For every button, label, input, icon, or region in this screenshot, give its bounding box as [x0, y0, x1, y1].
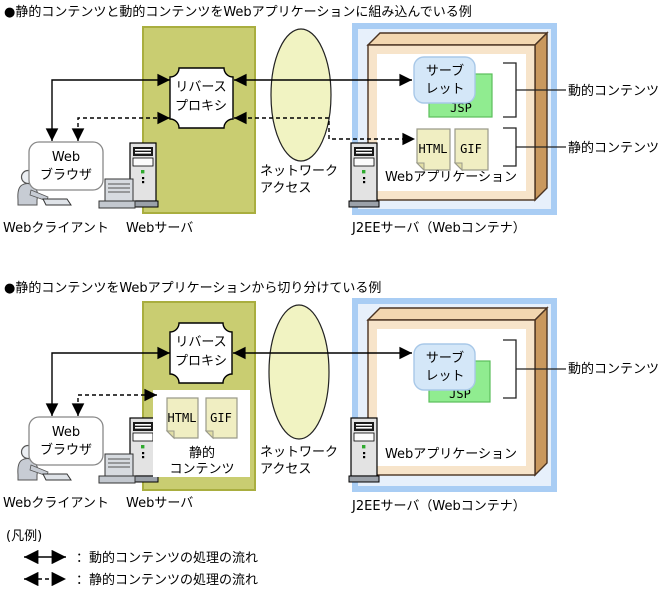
section1-title: ●静的コンテンツと動的コンテンツをWebアプリケーションに組み込んでいる例 — [4, 4, 472, 20]
reverse-proxy-line2-2: プロキシ — [175, 354, 227, 369]
gif-doc-label-1: GIF — [460, 142, 482, 156]
html-doc-icon-2: HTML — [167, 398, 198, 438]
servlet-label-line1-1: サーブ — [426, 63, 464, 79]
section2-title: ●静的コンテンツをWebアプリケーションから切り分けている例 — [4, 280, 381, 296]
diagram-canvas: ●静的コンテンツと動的コンテンツをWebアプリケーションに組み込んでいる例 JS… — [0, 0, 672, 591]
network-label-line1-2: ネットワーク — [260, 445, 338, 460]
gif-doc-icon-1: GIF — [455, 129, 488, 170]
static-store-caption-line1: 静的 — [189, 445, 215, 461]
legend-dynamic-label: ：動的コンテンツの処理の流れ — [76, 550, 258, 566]
architecture-diagram: ●静的コンテンツと動的コンテンツをWebアプリケーションに組み込んでいる例 JS… — [0, 0, 672, 591]
dynamic-content-label-1: 動的コンテンツ — [568, 83, 659, 99]
reverse-proxy-line1-2: リバース — [175, 335, 226, 350]
reverse-proxy-box-1 — [170, 68, 233, 128]
reverse-proxy-box-2 — [170, 323, 232, 383]
legend-title: (凡例) — [6, 529, 42, 544]
network-ellipse-2 — [269, 305, 329, 439]
web-client-label-2: Webクライアント — [3, 496, 109, 511]
browser-label-line2-1: ブラウザ — [40, 167, 92, 183]
j2ee-server-tower-icon-2 — [349, 418, 379, 482]
webapp-box-top-1 — [368, 33, 547, 45]
html-doc-icon-1: HTML — [417, 129, 450, 170]
static-store-caption-line2: コンテンツ — [169, 462, 234, 477]
reverse-proxy-line2-1: プロキシ — [175, 99, 227, 114]
gif-doc-icon-2: GIF — [206, 398, 237, 438]
network-ellipse-1 — [271, 29, 331, 161]
html-doc-label-1: HTML — [419, 142, 448, 156]
j2ee-server-label-1: J2EEサーバ（Webコンテナ） — [351, 221, 526, 236]
web-client-label-1: Webクライアント — [3, 221, 109, 236]
webapp-box-side-1 — [535, 33, 547, 200]
servlet-label-line2-2: レット — [425, 369, 464, 384]
webapp-box-top-2 — [368, 308, 547, 320]
webapp-label-2: Webアプリケーション — [385, 447, 517, 462]
j2ee-server-tower-icon-1 — [349, 143, 379, 207]
network-label-line2-2: アクセス — [260, 462, 311, 477]
browser-label-line2-2: ブラウザ — [40, 442, 92, 458]
webapp-label-1: Webアプリケーション — [385, 170, 517, 185]
network-label-line1-1: ネットワーク — [260, 164, 338, 179]
servlet-label-line2-1: レット — [425, 82, 464, 97]
gif-doc-label-2: GIF — [210, 411, 232, 425]
browser-label-line1-2: Web — [52, 425, 80, 440]
j2ee-server-label-2: J2EEサーバ（Webコンテナ） — [351, 499, 526, 514]
network-label-line2-1: アクセス — [260, 181, 311, 196]
servlet-label-line1-2: サーブ — [426, 350, 464, 366]
legend-static-label: ：静的コンテンツの処理の流れ — [76, 572, 258, 588]
html-doc-label-2: HTML — [168, 411, 197, 425]
web-server-label-2: Webサーバ — [126, 496, 193, 511]
browser-label-line1-1: Web — [52, 150, 80, 165]
webapp-box-side-2 — [535, 308, 547, 475]
static-content-label-1: 静的コンテンツ — [568, 140, 659, 156]
dynamic-content-label-2: 動的コンテンツ — [568, 361, 659, 377]
reverse-proxy-line1-1: リバース — [175, 80, 226, 95]
web-server-label-1: Webサーバ — [126, 221, 193, 236]
